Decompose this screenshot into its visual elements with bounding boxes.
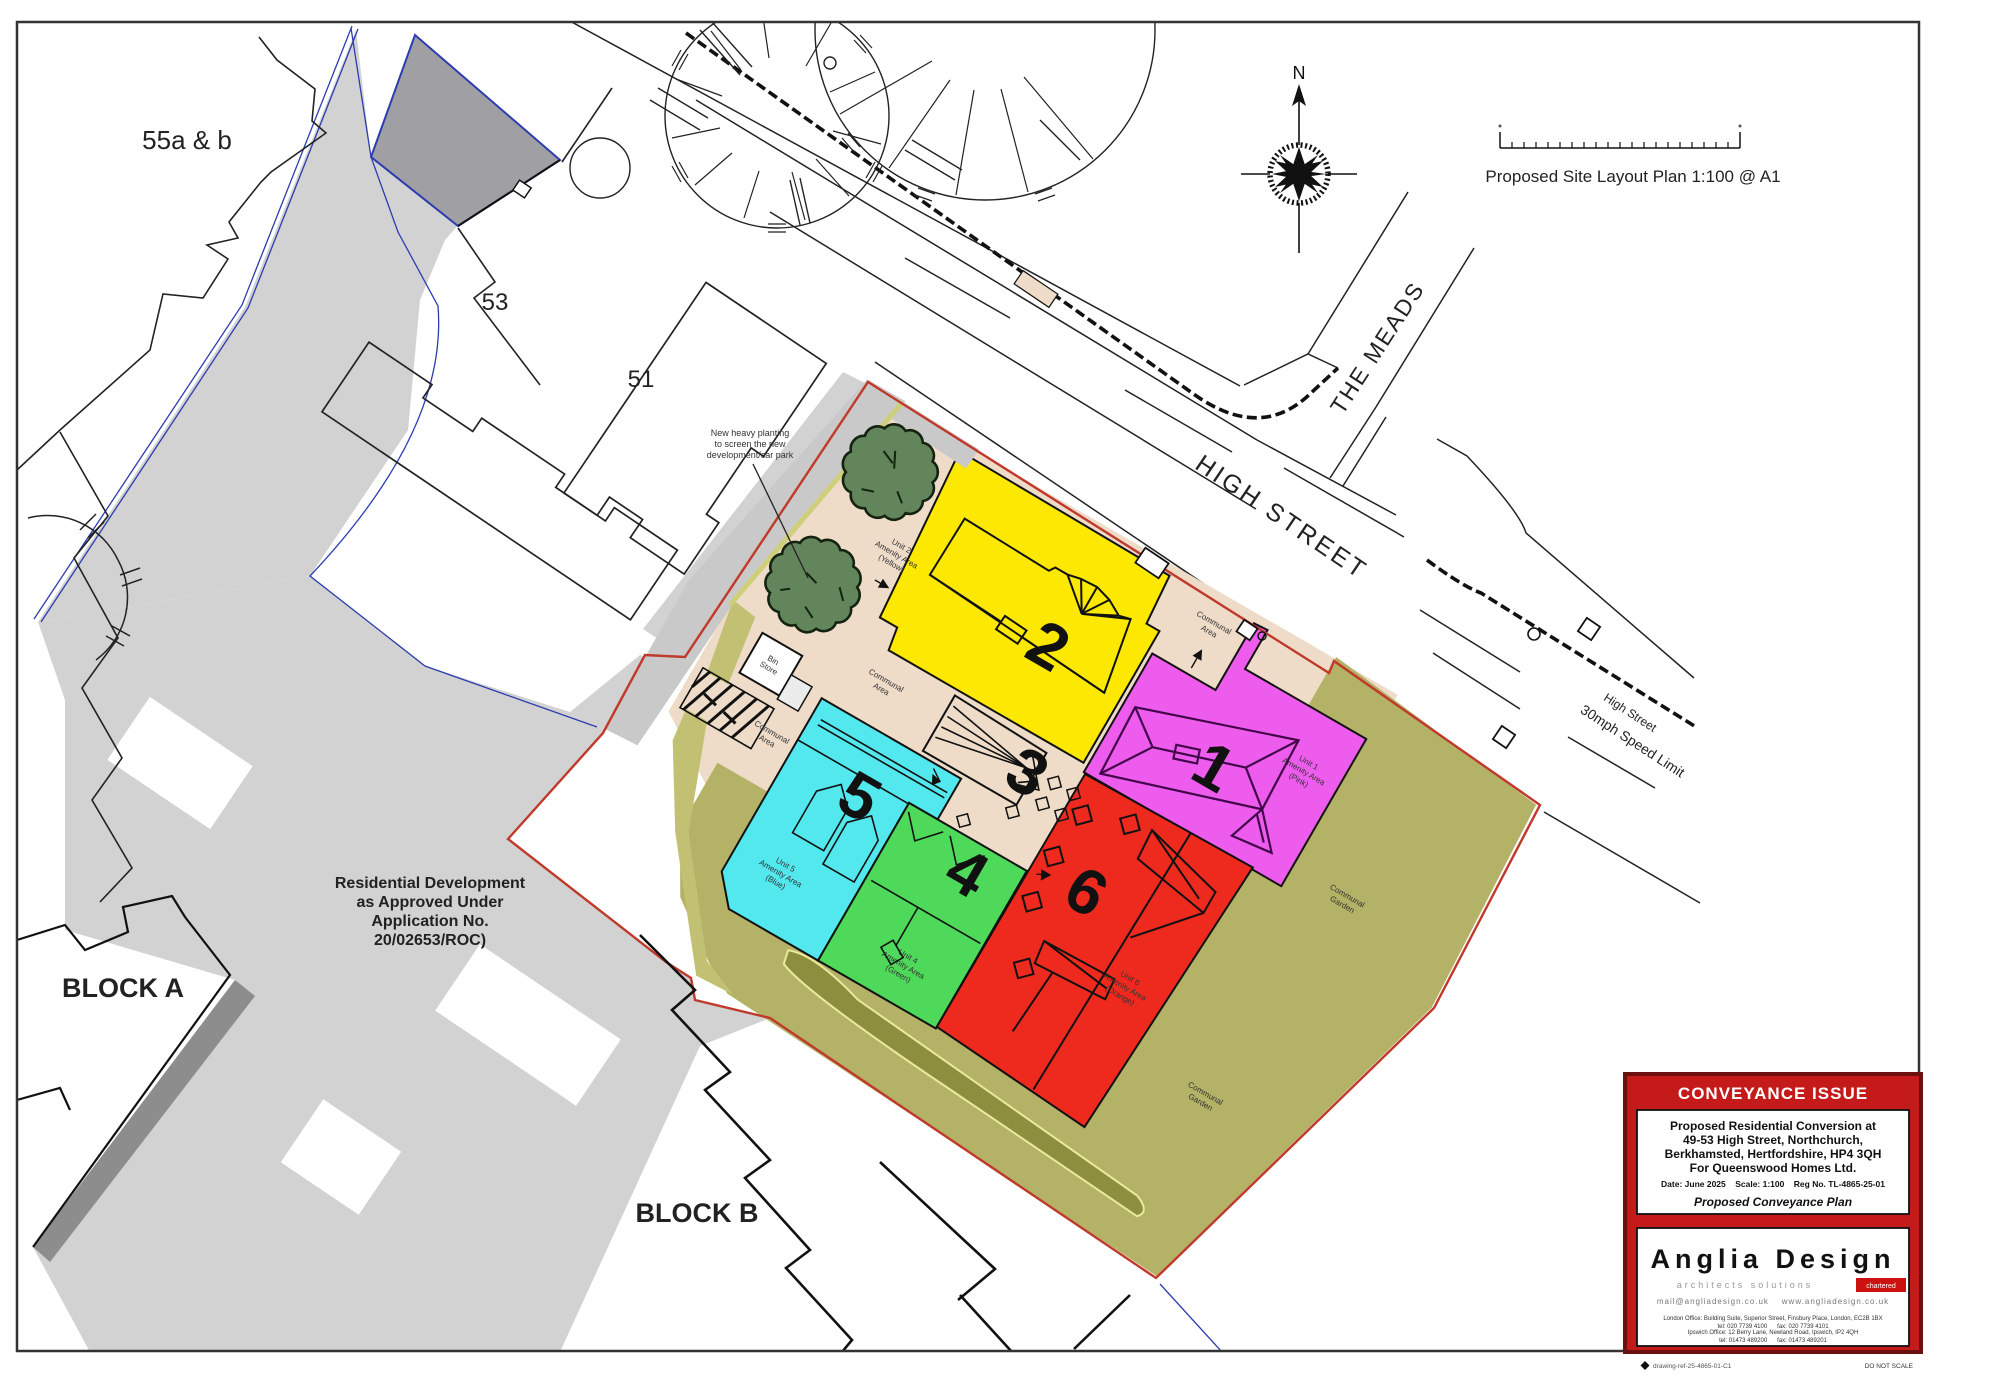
svg-text:architects solutions: architects solutions — [1677, 1280, 1814, 1290]
svg-text:BLOCK A: BLOCK A — [62, 973, 184, 1003]
svg-text:Proposed Conveyance Plan: Proposed Conveyance Plan — [1694, 1195, 1852, 1209]
svg-text:chartered: chartered — [1866, 1283, 1896, 1290]
svg-text:mail@angliadesign.co.uk www: mail@angliadesign.co.uk www.angliadesign… — [1657, 1297, 1889, 1306]
svg-text:CONVEYANCE ISSUE: CONVEYANCE ISSUE — [1678, 1084, 1868, 1103]
svg-text:49-53 High Street, Northchurch: 49-53 High Street, Northchurch, — [1683, 1133, 1863, 1147]
svg-text:Date: June 2025 Scale: 1:10: Date: June 2025 Scale: 1:100 Reg No. TL-… — [1661, 1179, 1885, 1189]
svg-text:DO NOT SCALE: DO NOT SCALE — [1865, 1363, 1914, 1370]
svg-text:London Office: Building Suite,: London Office: Building Suite, Superior … — [1663, 1316, 1882, 1322]
svg-text:For Queenswood Homes Ltd.: For Queenswood Homes Ltd. — [1690, 1161, 1857, 1175]
svg-text:55a & b: 55a & b — [142, 125, 232, 155]
svg-text:Anglia Design: Anglia Design — [1650, 1244, 1895, 1274]
svg-text:Proposed Site Layout Plan 1:10: Proposed Site Layout Plan 1:100 @ A1 — [1485, 167, 1780, 186]
svg-text:development/car park: development/car park — [707, 450, 794, 460]
svg-text:51: 51 — [628, 366, 655, 393]
svg-text:tel: 01473 489200 fax: 01: tel: 01473 489200 fax: 01473 489201 — [1719, 1338, 1827, 1344]
svg-text:BLOCK B: BLOCK B — [636, 1198, 759, 1228]
svg-text:N: N — [1293, 63, 1306, 83]
svg-text:Residential Development: Residential Development — [335, 875, 526, 892]
svg-text:Application No.: Application No. — [371, 913, 488, 930]
svg-text:Berkhamsted, Hertfordshire, HP: Berkhamsted, Hertfordshire, HP4 3QH — [1665, 1147, 1882, 1161]
svg-text:20/02653/ROC): 20/02653/ROC) — [374, 932, 486, 949]
svg-text:53: 53 — [482, 289, 509, 316]
svg-text:drawing-ref-25-4865-01-C1: drawing-ref-25-4865-01-C1 — [1653, 1363, 1732, 1370]
svg-text:Ipswich Office: 12 Berry Lane,: Ipswich Office: 12 Berry Lane, Newland R… — [1688, 1330, 1859, 1336]
svg-text:as Approved Under: as Approved Under — [357, 894, 504, 911]
svg-text:Proposed Residential Conversio: Proposed Residential Conversion at — [1670, 1119, 1876, 1133]
svg-text:to screen the new: to screen the new — [714, 439, 786, 449]
svg-text:New heavy planting: New heavy planting — [711, 428, 790, 438]
